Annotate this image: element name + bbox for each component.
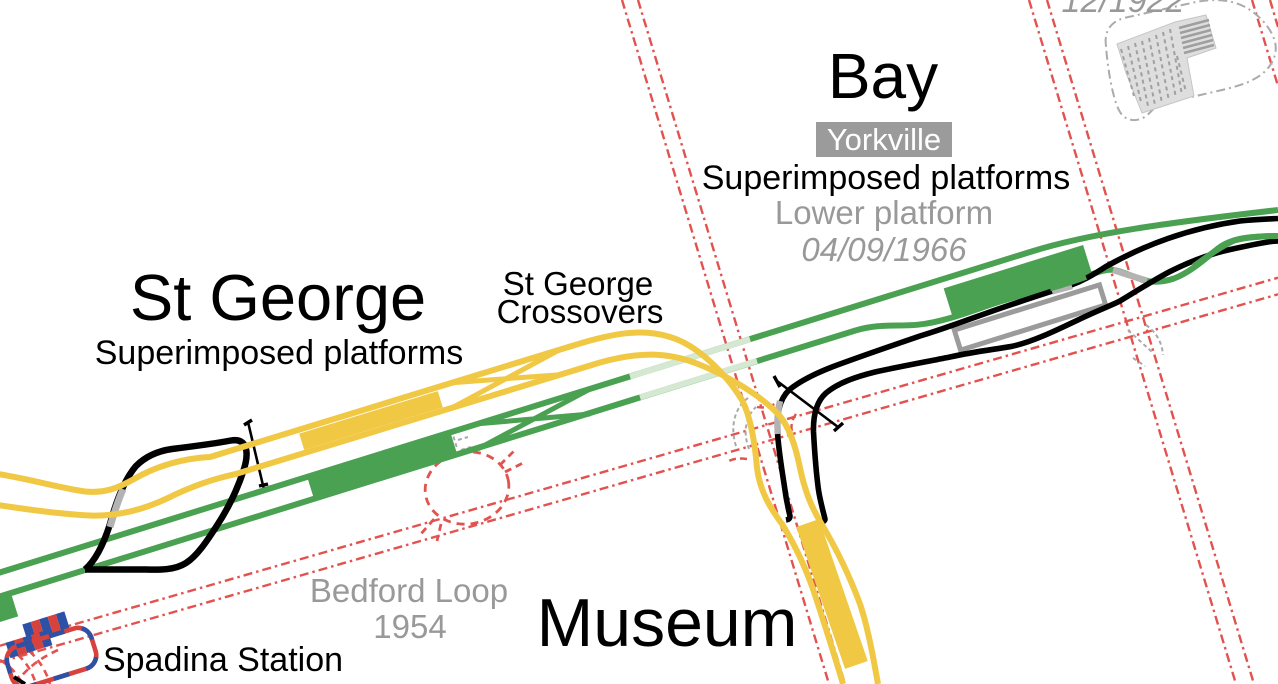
svg-text:12/1922: 12/1922: [1062, 0, 1185, 20]
svg-text:St George: St George: [130, 261, 426, 334]
svg-text:Bay: Bay: [828, 40, 938, 112]
svg-text:04/09/1966: 04/09/1966: [801, 231, 967, 268]
svg-text:Superimposed platforms: Superimposed platforms: [702, 159, 1071, 197]
svg-text:Museum: Museum: [537, 585, 798, 661]
svg-text:Bedford Loop: Bedford Loop: [310, 572, 508, 609]
svg-text:Superimposed platforms: Superimposed platforms: [95, 334, 464, 372]
svg-text:Lower platform: Lower platform: [775, 194, 993, 231]
svg-text:Crossovers: Crossovers: [497, 293, 664, 330]
svg-text:Yorkville: Yorkville: [827, 122, 941, 157]
svg-text:1954: 1954: [373, 608, 446, 645]
svg-text:Spadina Station: Spadina Station: [103, 641, 343, 679]
